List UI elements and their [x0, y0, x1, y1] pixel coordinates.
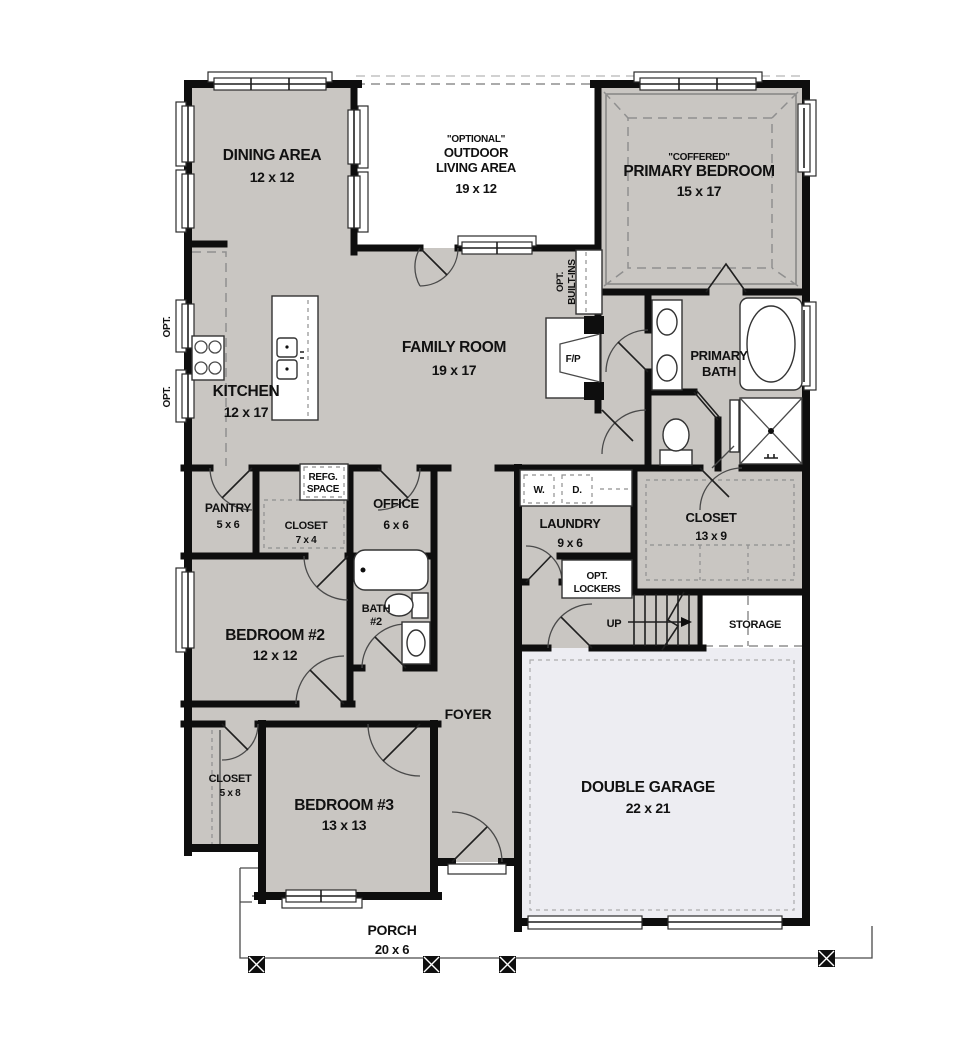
room-label-closet-7x4: CLOSET	[285, 520, 328, 532]
room-label-bath2-2: #2	[370, 616, 382, 628]
bath2-toilet	[385, 593, 428, 618]
room-dims-closet-13x9: 13 x 9	[695, 529, 727, 543]
room-label-closet-5x8: CLOSET	[209, 773, 252, 785]
room-label-garage: DOUBLE GARAGE	[581, 779, 715, 796]
room-dims-pantry: 5 x 6	[217, 519, 240, 531]
dryer-label: D.	[572, 485, 582, 496]
washer-label: W.	[533, 485, 545, 496]
refg-label-1: REFG.	[308, 472, 338, 483]
room-tag-primary-bedroom: "COFFERED"	[668, 152, 730, 163]
room-label-bedroom3: BEDROOM #3	[294, 797, 394, 814]
storage-label: STORAGE	[729, 619, 781, 631]
room-label-kitchen: KITCHEN	[213, 383, 280, 400]
room-tag-outdoor: "OPTIONAL"	[447, 134, 506, 145]
room-dims-porch: 20 x 6	[375, 942, 409, 957]
room-label-pantry: PANTRY	[205, 501, 251, 515]
primary-tub	[740, 298, 802, 390]
room-label-bath2-1: BATH	[362, 603, 391, 615]
lockers-label-2: LOCKERS	[574, 584, 621, 595]
primary-toilet	[660, 419, 692, 465]
room-label-primary-bath-1: PRIMARY	[690, 348, 748, 363]
room-label-porch: PORCH	[367, 922, 416, 938]
optional-builtins	[576, 250, 602, 314]
room-label-primary-bath-2: BATH	[702, 364, 736, 379]
opt-builtins-label-1: OPT.	[555, 272, 566, 292]
cooktop	[192, 336, 224, 380]
room-label-dining: DINING AREA	[223, 147, 322, 164]
room-label-family: FAMILY ROOM	[402, 339, 506, 356]
room-label-closet-13x9: CLOSET	[686, 510, 737, 525]
room-label-bedroom2: BEDROOM #2	[225, 627, 325, 644]
kitchen-island	[272, 296, 318, 420]
room-dims-laundry: 9 x 6	[557, 536, 583, 550]
room-dims-bedroom3: 13 x 13	[322, 817, 367, 833]
room-dims-family: 19 x 17	[432, 362, 477, 378]
room-dims-closet-7x4: 7 x 4	[296, 535, 317, 546]
room-dims-office: 6 x 6	[383, 518, 409, 532]
room-label-office: OFFICE	[373, 496, 419, 511]
primary-vanity	[652, 300, 682, 390]
room-label-laundry: LAUNDRY	[540, 516, 602, 531]
foyer-label: FOYER	[445, 706, 492, 722]
opt-builtins-label-2: BUILT-INS	[567, 259, 578, 305]
room-dims-dining: 12 x 12	[250, 169, 295, 185]
floor-plan-drawing: DINING AREA 12 x 12 "OPTIONAL" OUTDOOR L…	[0, 0, 980, 1060]
room-label-outdoor-2: LIVING AREA	[436, 160, 517, 175]
room-label-primary-bedroom: PRIMARY BEDROOM	[623, 163, 774, 180]
lockers-label-1: OPT.	[586, 571, 608, 582]
porch-columns	[248, 950, 835, 973]
refg-label-2: SPACE	[307, 484, 340, 495]
floor-plan-page: DINING AREA 12 x 12 "OPTIONAL" OUTDOOR L…	[0, 0, 980, 1060]
room-dims-kitchen: 12 x 17	[224, 404, 269, 420]
room-dims-garage: 22 x 21	[626, 800, 671, 816]
room-dims-outdoor: 19 x 12	[455, 181, 496, 196]
bath2-tub	[354, 550, 428, 590]
opt-window-label-2: OPT.	[162, 386, 173, 408]
room-dims-primary-bedroom: 15 x 17	[677, 183, 722, 199]
opt-window-label-1: OPT.	[162, 316, 173, 338]
room-dims-bedroom2: 12 x 12	[253, 647, 298, 663]
bath2-vanity	[402, 622, 430, 664]
stairs-up-label: UP	[607, 618, 622, 630]
room-dims-closet-5x8: 5 x 8	[220, 788, 241, 799]
room-label-outdoor-1: OUTDOOR	[444, 145, 509, 160]
fireplace-label: F/P	[566, 354, 581, 365]
